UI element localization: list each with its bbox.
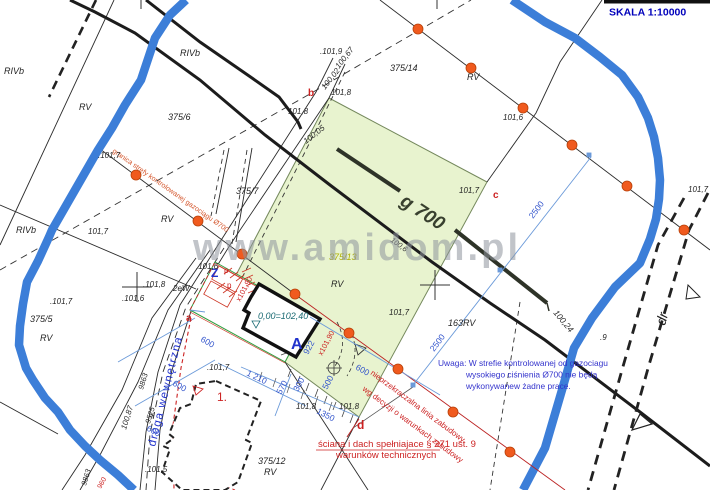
svg-text:101,8: 101,8 xyxy=(296,402,317,411)
svg-text:.101,7: .101,7 xyxy=(98,151,121,160)
svg-text:wysokiego ciśnienia Ø700 nie b: wysokiego ciśnienia Ø700 nie będą xyxy=(465,370,598,380)
svg-text:101,7: 101,7 xyxy=(688,185,709,194)
svg-text:www.amidom.pl: www.amidom.pl xyxy=(192,227,521,269)
svg-text:b: b xyxy=(308,88,314,99)
svg-text:375/12: 375/12 xyxy=(258,456,286,466)
svg-text:.101,8: .101,8 xyxy=(143,280,166,289)
svg-text:d: d xyxy=(357,418,364,432)
svg-text:1.: 1. xyxy=(217,390,227,404)
svg-text:.101,9: .101,9 xyxy=(320,47,343,56)
svg-text:101,7: 101,7 xyxy=(459,186,480,195)
svg-text:RV: RV xyxy=(40,333,53,343)
svg-text:c: c xyxy=(493,190,499,201)
svg-text:375/6: 375/6 xyxy=(168,112,191,122)
svg-text:101,8: 101,8 xyxy=(331,88,352,97)
svg-text:375/14: 375/14 xyxy=(390,63,418,73)
svg-text:RV: RV xyxy=(467,72,480,82)
svg-text:163RV: 163RV xyxy=(448,318,476,328)
svg-text:ściana i dach spełniajace § 27: ściana i dach spełniajace § 271 ust. 9 xyxy=(318,439,476,450)
svg-text:101,7: 101,7 xyxy=(88,227,109,236)
svg-text:.9: .9 xyxy=(600,333,607,342)
svg-text:.101,7: .101,7 xyxy=(50,297,73,306)
svg-text:.101,6: .101,6 xyxy=(122,294,145,303)
svg-text:RIVb: RIVb xyxy=(180,48,200,58)
svg-text:warunków technicznych: warunków technicznych xyxy=(335,450,436,461)
svg-text:0,00=102,40: 0,00=102,40 xyxy=(258,311,308,321)
svg-text:101,8: 101,8 xyxy=(288,107,309,116)
svg-text:.101,5: .101,5 xyxy=(145,465,168,474)
svg-text:p: p xyxy=(227,281,232,290)
svg-text:RIVb: RIVb xyxy=(4,66,24,76)
svg-text:RV: RV xyxy=(331,279,344,289)
svg-text:a: a xyxy=(186,313,192,324)
svg-text:375/5: 375/5 xyxy=(30,314,54,324)
svg-text:SKALA 1:10000: SKALA 1:10000 xyxy=(609,7,686,19)
svg-text:101,6: 101,6 xyxy=(503,113,524,122)
svg-text:RV: RV xyxy=(79,102,92,112)
svg-text:101,8: 101,8 xyxy=(339,402,360,411)
svg-text:RIVb: RIVb xyxy=(16,225,36,235)
svg-text:Uwaga: W strefie kontrolowanej: Uwaga: W strefie kontrolowanej od gazoci… xyxy=(438,358,608,368)
svg-text:RV: RV xyxy=(161,214,174,224)
svg-text:2eW: 2eW xyxy=(172,284,191,293)
svg-text:wykonywanew żadne prace.: wykonywanew żadne prace. xyxy=(465,381,571,391)
svg-text:375/7: 375/7 xyxy=(236,186,260,196)
svg-text:RV: RV xyxy=(264,467,277,477)
svg-text:.101,7: .101,7 xyxy=(207,363,230,372)
svg-text:101,7: 101,7 xyxy=(389,308,410,317)
